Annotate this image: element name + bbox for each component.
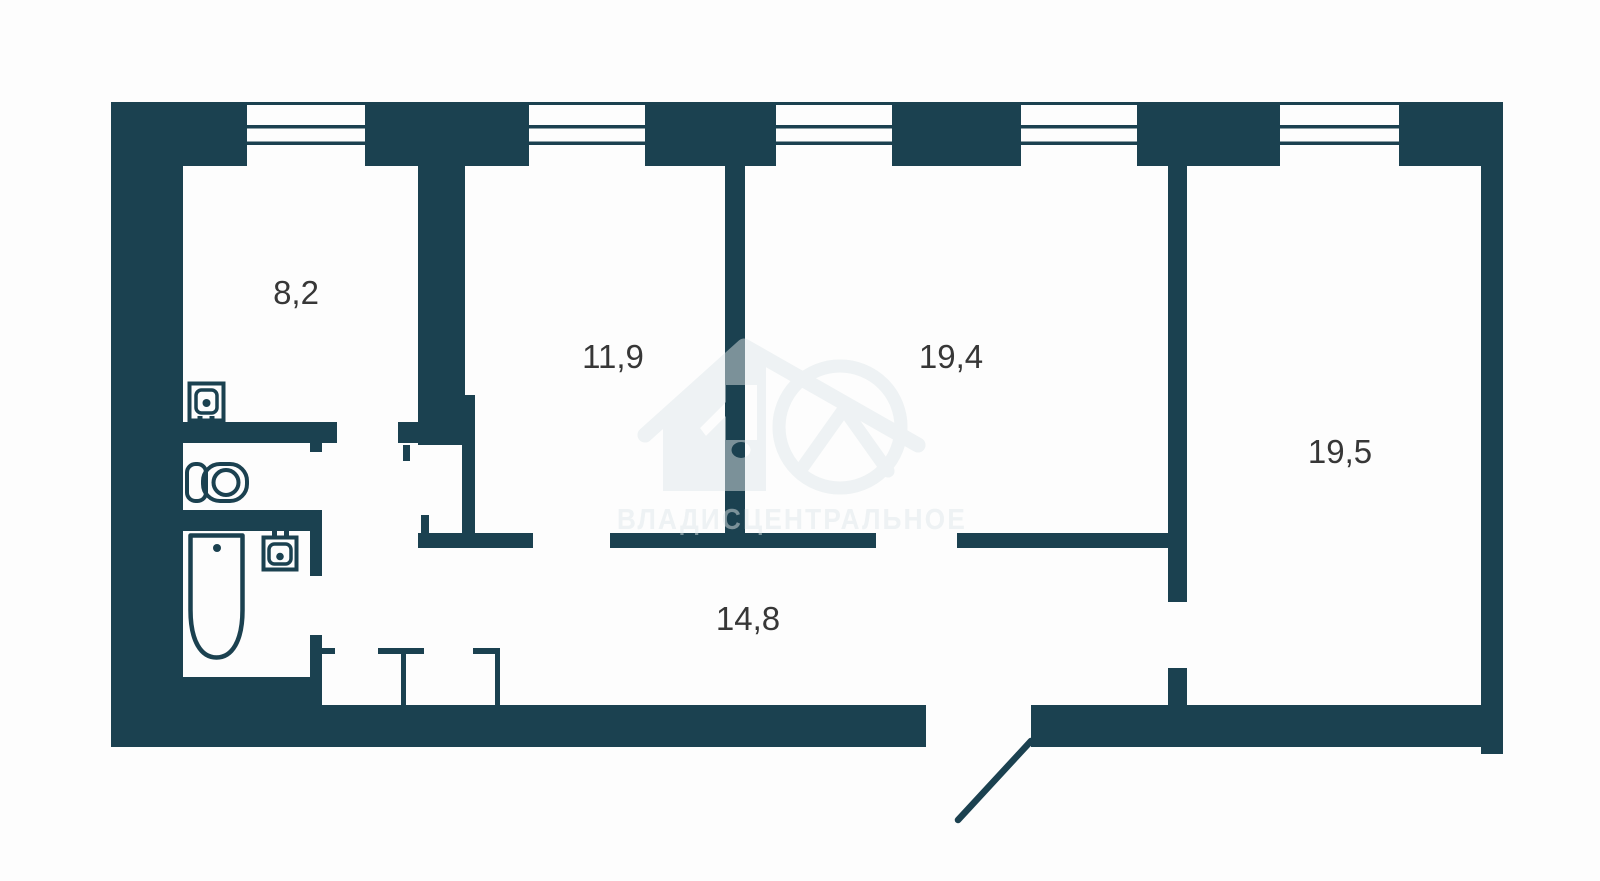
closet-corner-vertical	[495, 654, 500, 705]
wall-kitchen-room1	[418, 166, 465, 395]
wall-wc-right-stub	[310, 437, 322, 452]
closet-corner-horizontal	[473, 648, 500, 654]
wall-hall-room1	[462, 445, 475, 535]
room-label-bedroom-large: 19,5	[1308, 433, 1372, 470]
closet-tee-vertical	[401, 654, 406, 705]
window-icon	[776, 105, 892, 166]
wall-left	[111, 166, 183, 747]
wall-corridor-a	[418, 533, 533, 548]
wall-room3-upper	[1168, 166, 1187, 602]
floor-plan-drawing: ВЛАДИСЦЕНТРАЛЬНОЕ	[0, 0, 1600, 881]
room-label-bedroom-small: 11,9	[582, 338, 644, 375]
wall-bottom-left	[111, 705, 926, 747]
door-jamb-tick-1	[403, 445, 410, 461]
closet-tee-horizontal	[378, 648, 424, 654]
wall-bottom-right	[1031, 705, 1503, 747]
closet-tick-left	[313, 648, 335, 654]
door-jamb-tick-2	[421, 515, 429, 533]
wall-corridor-c	[957, 533, 1187, 548]
room-label-hallway: 14,8	[716, 600, 780, 637]
room-label-living-room: 19,4	[919, 338, 983, 375]
wall-wc-bath-divider	[183, 510, 318, 531]
window-icon	[247, 105, 365, 166]
window-icon	[1021, 105, 1137, 166]
wall-kitchen-room1-block	[418, 395, 475, 445]
wall-wc-right-low	[310, 635, 322, 705]
wall-kitchen-door-jamb	[398, 422, 418, 443]
room-label-kitchen: 8,2	[273, 274, 319, 311]
window-icon	[529, 105, 645, 166]
wall-bathroom-bottom	[183, 677, 322, 705]
window-icon	[1280, 105, 1399, 166]
wall-room3-lower	[1168, 668, 1187, 705]
wall-right	[1481, 166, 1503, 754]
floor-plan-page: ВЛАДИСЦЕНТРАЛЬНОЕ	[0, 0, 1600, 881]
